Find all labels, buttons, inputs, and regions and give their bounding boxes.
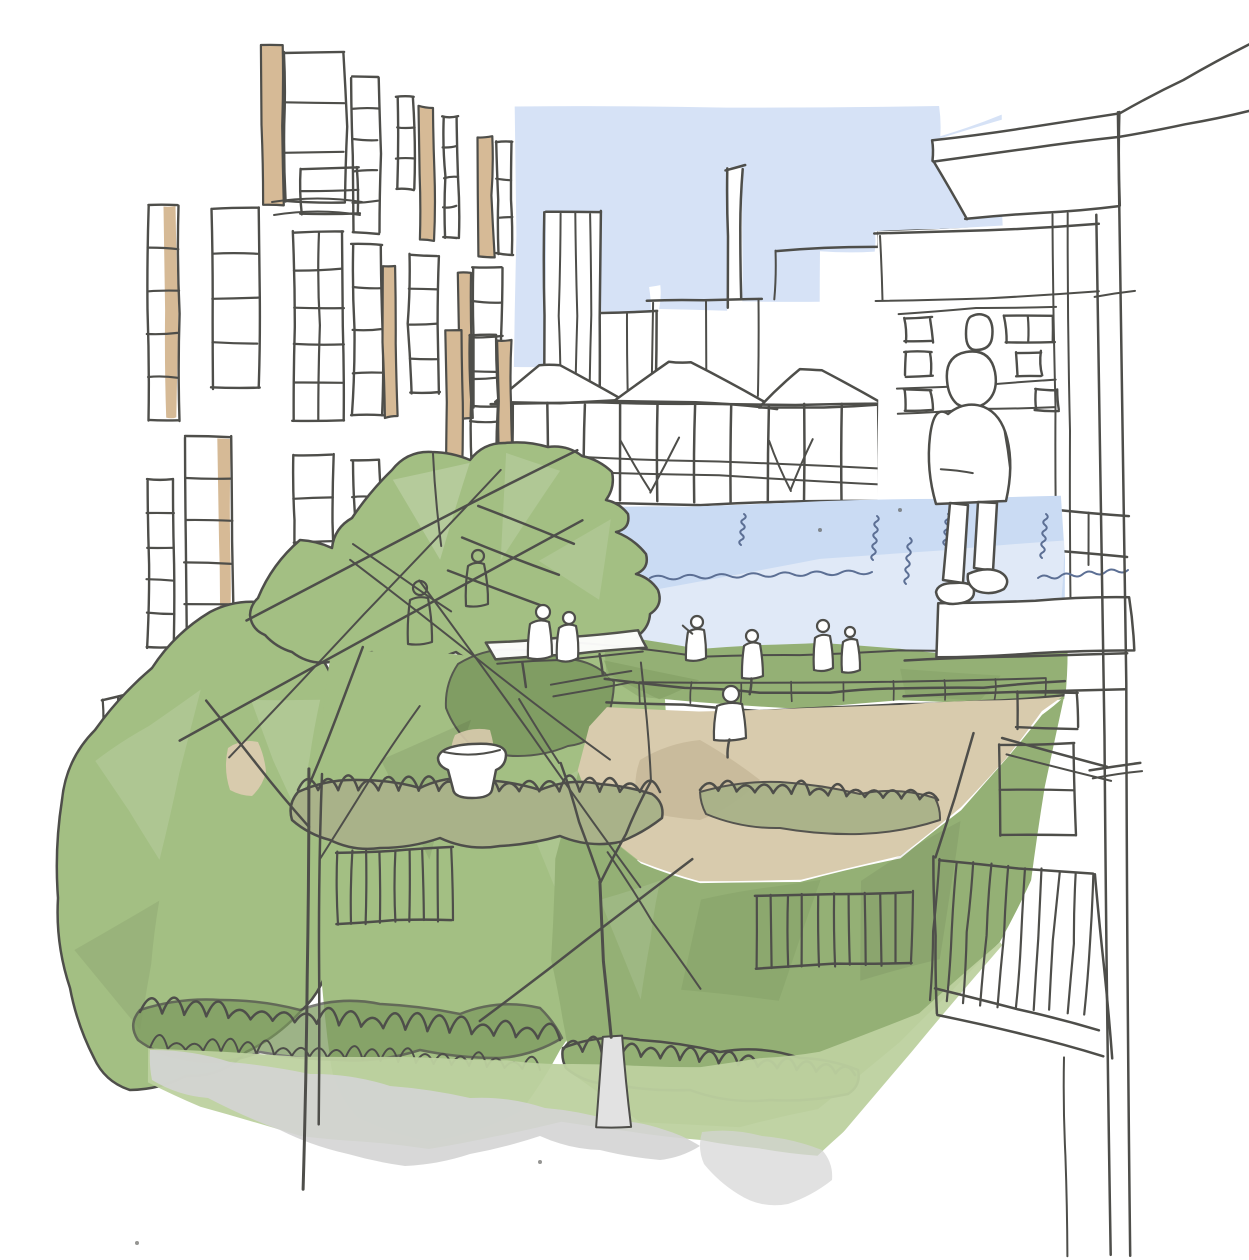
- mid-building-window: [904, 389, 932, 390]
- garden-fence: [880, 894, 881, 966]
- facade-window: [147, 481, 149, 648]
- facade-window: [438, 256, 439, 394]
- mid-building-window: [904, 351, 931, 352]
- facade-window: [293, 497, 333, 498]
- garden-fence: [409, 850, 410, 922]
- seated-person-head: [563, 612, 575, 624]
- terrace-window: [1000, 790, 1074, 791]
- facade-window: [318, 232, 320, 421]
- facade-window: [409, 324, 437, 325]
- facade-window: [147, 479, 172, 480]
- facade-window: [149, 291, 179, 292]
- facade-window: [342, 231, 344, 420]
- pedestrian-body: [714, 703, 746, 741]
- facade-window: [351, 244, 382, 245]
- facade-window: [212, 342, 257, 343]
- facade-window: [498, 217, 512, 218]
- facade-window: [413, 98, 415, 189]
- mid-building-window: [906, 376, 933, 377]
- pedestrian-head: [817, 620, 829, 632]
- facade-window: [351, 415, 383, 416]
- pedestrian-body: [742, 642, 763, 678]
- facade-window: [353, 170, 377, 171]
- facade-window: [410, 359, 439, 360]
- pavilion-roof: [614, 362, 777, 409]
- pedestrian-head: [723, 686, 739, 702]
- facade-window: [352, 139, 377, 140]
- pavilion-post: [657, 405, 658, 501]
- skyline-chimney: [727, 168, 728, 307]
- bank-wall-ticks: [1045, 678, 1046, 699]
- facade-window: [149, 420, 178, 421]
- facade-window: [283, 52, 344, 53]
- facade-window: [410, 392, 440, 393]
- facade-window-tan: [164, 206, 179, 418]
- facade-tan-panel: [383, 266, 398, 418]
- garden-fence: [834, 893, 835, 966]
- balcony-person-torso: [929, 405, 1010, 504]
- facade-window: [353, 372, 383, 373]
- facade-window: [184, 562, 232, 564]
- mid-building-window: [1035, 410, 1059, 411]
- balcony-ledge: [936, 597, 1134, 657]
- facade-window: [470, 378, 495, 379]
- facade-window: [212, 298, 258, 299]
- facade-window: [353, 232, 379, 234]
- terrace-window: [1077, 693, 1078, 728]
- skyline-block: [758, 299, 759, 396]
- facade-tan-panel: [478, 136, 495, 257]
- pavilion-roof: [759, 369, 884, 407]
- mid-building-window: [906, 317, 933, 319]
- facade-window: [379, 78, 381, 233]
- facade-tan-panel: [419, 106, 435, 241]
- facade-window: [301, 167, 359, 169]
- sketch-canvas: [0, 0, 1249, 1260]
- facade-window: [444, 177, 458, 179]
- facade-window: [397, 98, 398, 189]
- bank-wall-ticks: [791, 682, 792, 702]
- facade-window: [213, 253, 258, 254]
- facade-window: [213, 208, 259, 209]
- facade-window: [471, 301, 501, 303]
- facade-window: [301, 190, 358, 191]
- pedestrian-body: [814, 635, 833, 671]
- facade-window: [353, 329, 381, 330]
- water-fleck: [898, 508, 902, 512]
- pen-fleck: [135, 1241, 139, 1245]
- facade-window: [343, 53, 347, 201]
- mid-building-window: [1017, 353, 1042, 354]
- facade-window: [353, 287, 381, 288]
- seated-person-body: [557, 625, 579, 662]
- facade-window: [409, 289, 438, 290]
- facade-window: [185, 436, 231, 437]
- facade-window: [397, 127, 414, 128]
- facade-window: [470, 335, 497, 336]
- pavilion-post: [730, 405, 731, 502]
- mid-building-window: [1035, 389, 1056, 390]
- bank-wall-ticks: [639, 682, 640, 704]
- facade-window: [396, 158, 415, 159]
- facade-window: [397, 189, 414, 190]
- facade-window: [147, 579, 174, 581]
- water-fleck: [818, 528, 822, 532]
- facade-window: [148, 248, 179, 250]
- facade-window: [173, 479, 174, 647]
- garden-fence: [865, 893, 866, 965]
- facade-window: [351, 460, 379, 461]
- balcony-person-leg: [974, 502, 997, 571]
- garden-fence: [849, 895, 850, 965]
- bank-wall-ticks: [944, 680, 945, 700]
- sketch-page: [0, 0, 1249, 1260]
- pedestrian-head: [845, 627, 855, 637]
- pavilion-post: [841, 404, 842, 501]
- facade-window: [283, 152, 344, 153]
- seated-person-head: [536, 605, 550, 619]
- mid-building-window: [1028, 316, 1029, 342]
- facade-window: [147, 613, 174, 614]
- pavilion-roof: [495, 365, 623, 404]
- garden-fence: [818, 895, 819, 967]
- facade-window: [284, 201, 345, 203]
- mid-building-window: [905, 410, 933, 411]
- facade-window: [211, 387, 260, 388]
- balcony-person-shoe: [968, 569, 1008, 593]
- facade-tan-panel: [261, 45, 284, 206]
- mid-building-window: [905, 389, 906, 410]
- facade-window: [496, 141, 512, 142]
- mid-building-window: [905, 352, 906, 375]
- garden-fence: [395, 851, 396, 922]
- garden-fence: [787, 896, 788, 967]
- pedestrian-head: [746, 630, 758, 642]
- facade-window: [496, 141, 498, 254]
- facade-window: [186, 478, 231, 479]
- garden-fence: [771, 895, 772, 968]
- building-crossbar: [1095, 291, 1135, 297]
- pavilion-post: [768, 406, 769, 501]
- facade-window: [186, 520, 233, 521]
- pavilion-post: [804, 404, 805, 502]
- facade-window: [284, 52, 286, 202]
- mid-building-window: [1035, 389, 1036, 409]
- facade-window: [285, 102, 345, 103]
- facade-window: [147, 333, 178, 334]
- facade-window: [148, 376, 178, 377]
- facade-window: [351, 78, 353, 232]
- pen-fleck: [538, 1160, 542, 1164]
- seated-person-body: [528, 620, 552, 659]
- facade-window: [496, 179, 511, 181]
- garden-fence: [379, 852, 380, 923]
- right-building-slab-edge: [932, 140, 933, 161]
- balcony-person-head: [947, 351, 996, 408]
- pedestrian-head: [691, 616, 703, 628]
- facade-window: [352, 76, 378, 77]
- facade-window: [352, 108, 379, 109]
- facade-window: [470, 421, 497, 422]
- mid-building-window: [1016, 352, 1018, 375]
- facade-window: [294, 455, 332, 456]
- facade-window: [511, 142, 512, 254]
- balcony-person-shoe: [936, 583, 974, 604]
- facade-window: [411, 255, 437, 256]
- garden-fence: [366, 851, 367, 924]
- pedestrian-body: [842, 639, 860, 673]
- facade-window: [293, 231, 295, 421]
- pedestrian-body: [686, 629, 706, 661]
- pavilion-post: [694, 405, 695, 502]
- mid-building-window: [930, 352, 931, 375]
- facade-window: [147, 206, 148, 421]
- facade-window: [185, 438, 187, 648]
